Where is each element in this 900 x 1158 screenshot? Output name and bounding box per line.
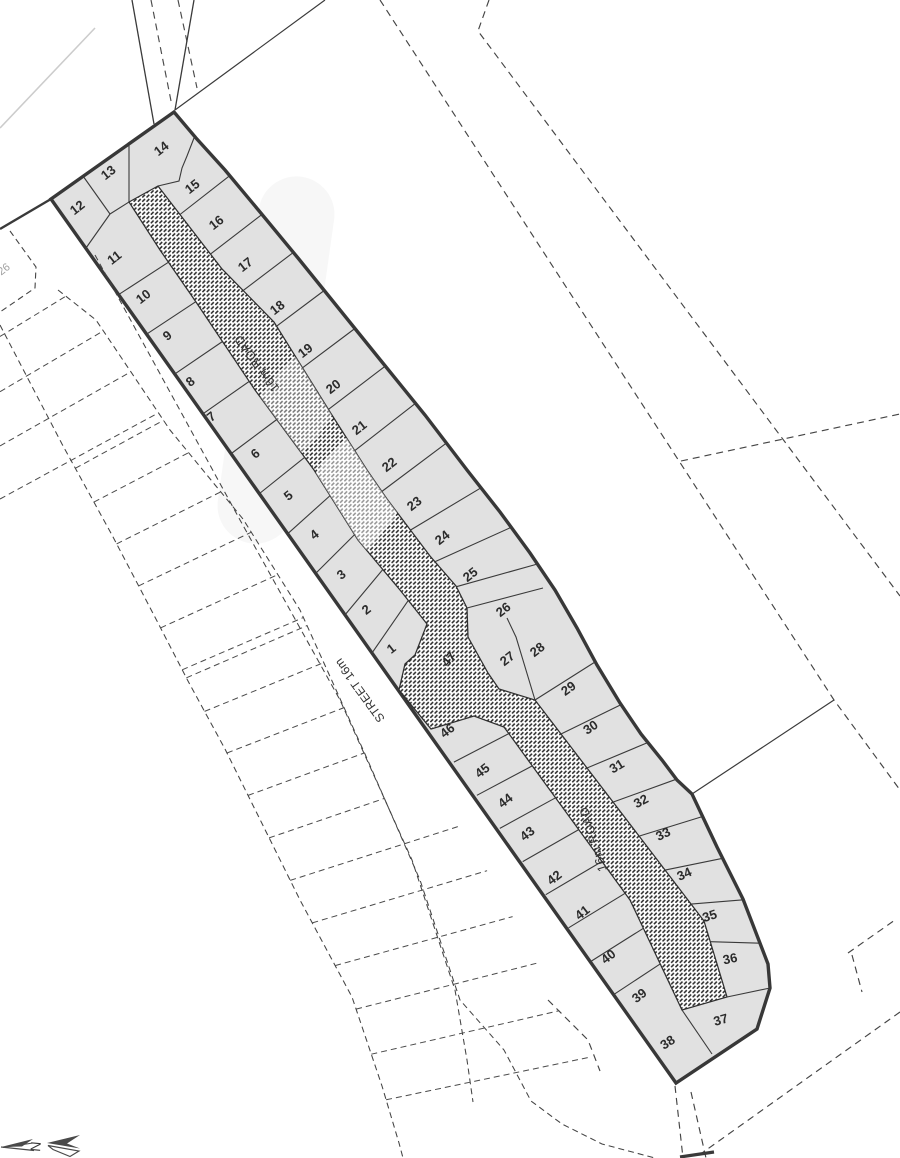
- svg-text:N: N: [27, 1141, 44, 1152]
- svg-text:36: 36: [721, 950, 738, 968]
